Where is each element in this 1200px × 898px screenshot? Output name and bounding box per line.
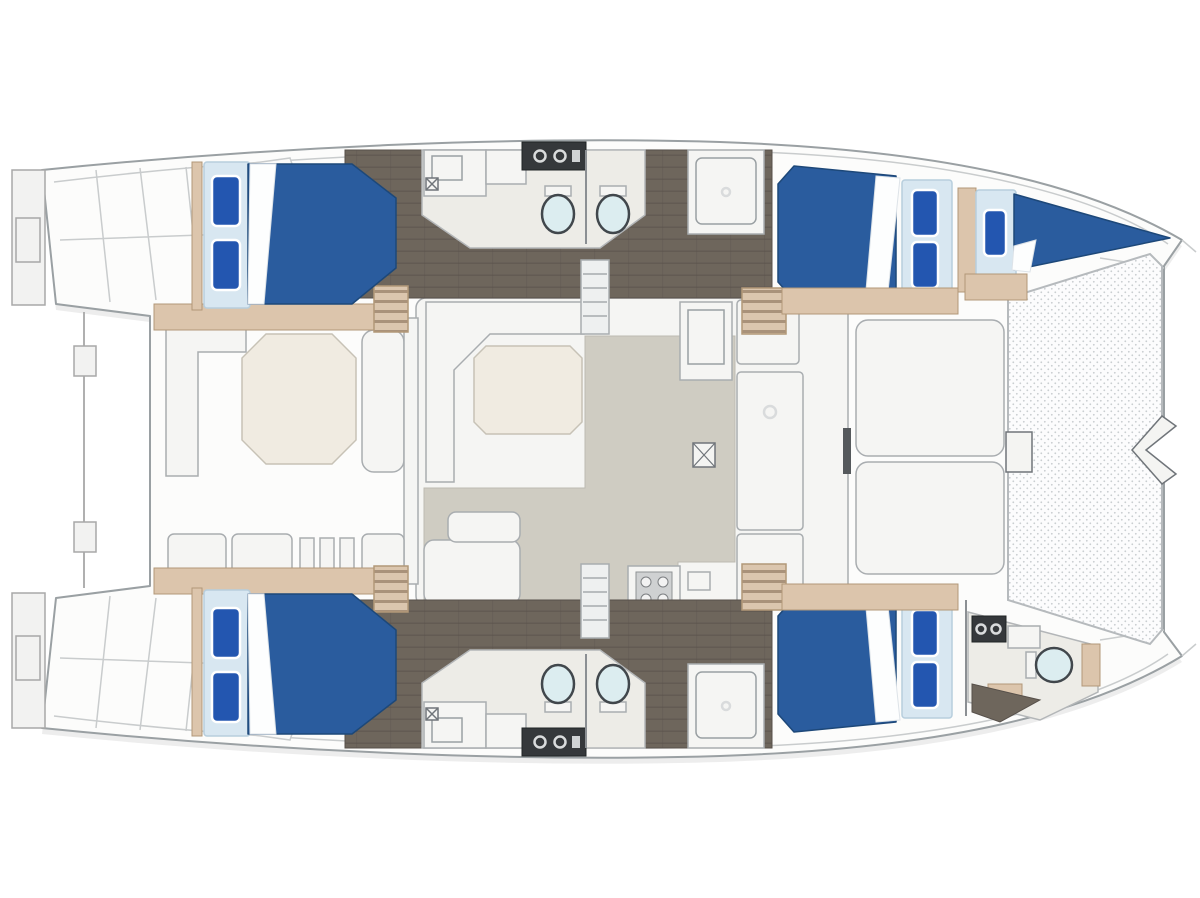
anchor-locker-trim — [965, 274, 1027, 300]
stbd-fwd-deck-trim — [782, 584, 958, 610]
galley-counter — [737, 372, 803, 530]
port-fwd-pillow-2 — [912, 242, 938, 288]
chaise-seat — [424, 540, 520, 604]
stbd-fwd-pillow-2 — [912, 662, 938, 708]
forward-cockpit-door — [843, 428, 851, 474]
stbd-aft-pillow-2 — [212, 672, 240, 722]
port-aft-cabin-trim — [192, 162, 202, 310]
saloon-sliding-door — [404, 318, 418, 584]
forward-bench-aft — [856, 320, 1004, 456]
stbd-vanity-top — [522, 728, 586, 756]
chaise-backrest — [448, 512, 520, 542]
side-deck-trim-port — [154, 304, 374, 330]
port-aft-pillow-2 — [212, 240, 240, 290]
stbd-forward-cabin — [778, 584, 958, 732]
stbd-aft-pillow-1 — [212, 608, 240, 658]
stbd-aft-cabin-trim — [192, 588, 202, 736]
side-deck-trim-starboard — [154, 568, 374, 594]
galley-small-locker — [688, 572, 710, 590]
stbd-aft-cabin — [192, 588, 396, 736]
stbd-saloon-entry-steps — [581, 564, 609, 638]
port-forward-cabin — [778, 166, 976, 314]
port-aft-pillow-1 — [212, 176, 240, 226]
stbd-fwd-companionway-stairs — [742, 564, 786, 610]
forward-bench-fore — [856, 462, 1004, 574]
stbd-aft-companionway-stairs — [374, 566, 408, 612]
port-aft-cabin — [192, 162, 396, 310]
port-fwd-deck-trim — [782, 288, 958, 314]
yacht-floorplan: Catamaran layout plan — top view, bow to… — [0, 0, 1200, 898]
stbd-vanity-cabinet — [486, 714, 526, 748]
yacht-floorplan-canvas: Catamaran layout plan — top view, bow to… — [0, 0, 1200, 898]
stern-ladder-port — [16, 218, 40, 262]
bow-head-trim-1 — [1082, 644, 1100, 686]
stbd-toilet-fore — [597, 665, 629, 712]
port-vanity-top — [522, 142, 586, 170]
davit-fitting-top — [74, 346, 96, 376]
port-fwd-pillow-1 — [912, 190, 938, 236]
aft-cockpit — [154, 304, 418, 594]
port-vanity-cabinet — [486, 150, 526, 184]
port-aft-companionway-stairs — [374, 286, 408, 332]
port-fwd-companionway-stairs — [742, 288, 786, 334]
stbd-shower — [688, 664, 764, 748]
cockpit-side-bench — [362, 330, 404, 472]
stbd-toilet-aft — [542, 665, 574, 712]
stbd-fwd-pillow-1 — [912, 610, 938, 656]
saloon-table — [474, 346, 582, 434]
saloon-floor-hatch — [693, 443, 715, 467]
stern-ladder-starboard — [16, 636, 40, 680]
port-toilet-aft — [542, 186, 574, 233]
forepeak-pillow — [984, 210, 1006, 256]
cockpit-table — [242, 334, 356, 464]
bow-head-toilet — [1026, 648, 1072, 682]
trampoline-access-step — [1006, 432, 1032, 472]
bow-head-cabinet — [1008, 626, 1040, 648]
port-toilet-fore — [597, 186, 629, 233]
port-saloon-entry-steps — [581, 260, 609, 334]
bow-head-vanity — [972, 616, 1006, 642]
davit-fitting-bottom — [74, 522, 96, 552]
forward-cockpit — [843, 320, 1004, 574]
bow-area — [1006, 254, 1176, 644]
port-shower — [688, 150, 764, 234]
